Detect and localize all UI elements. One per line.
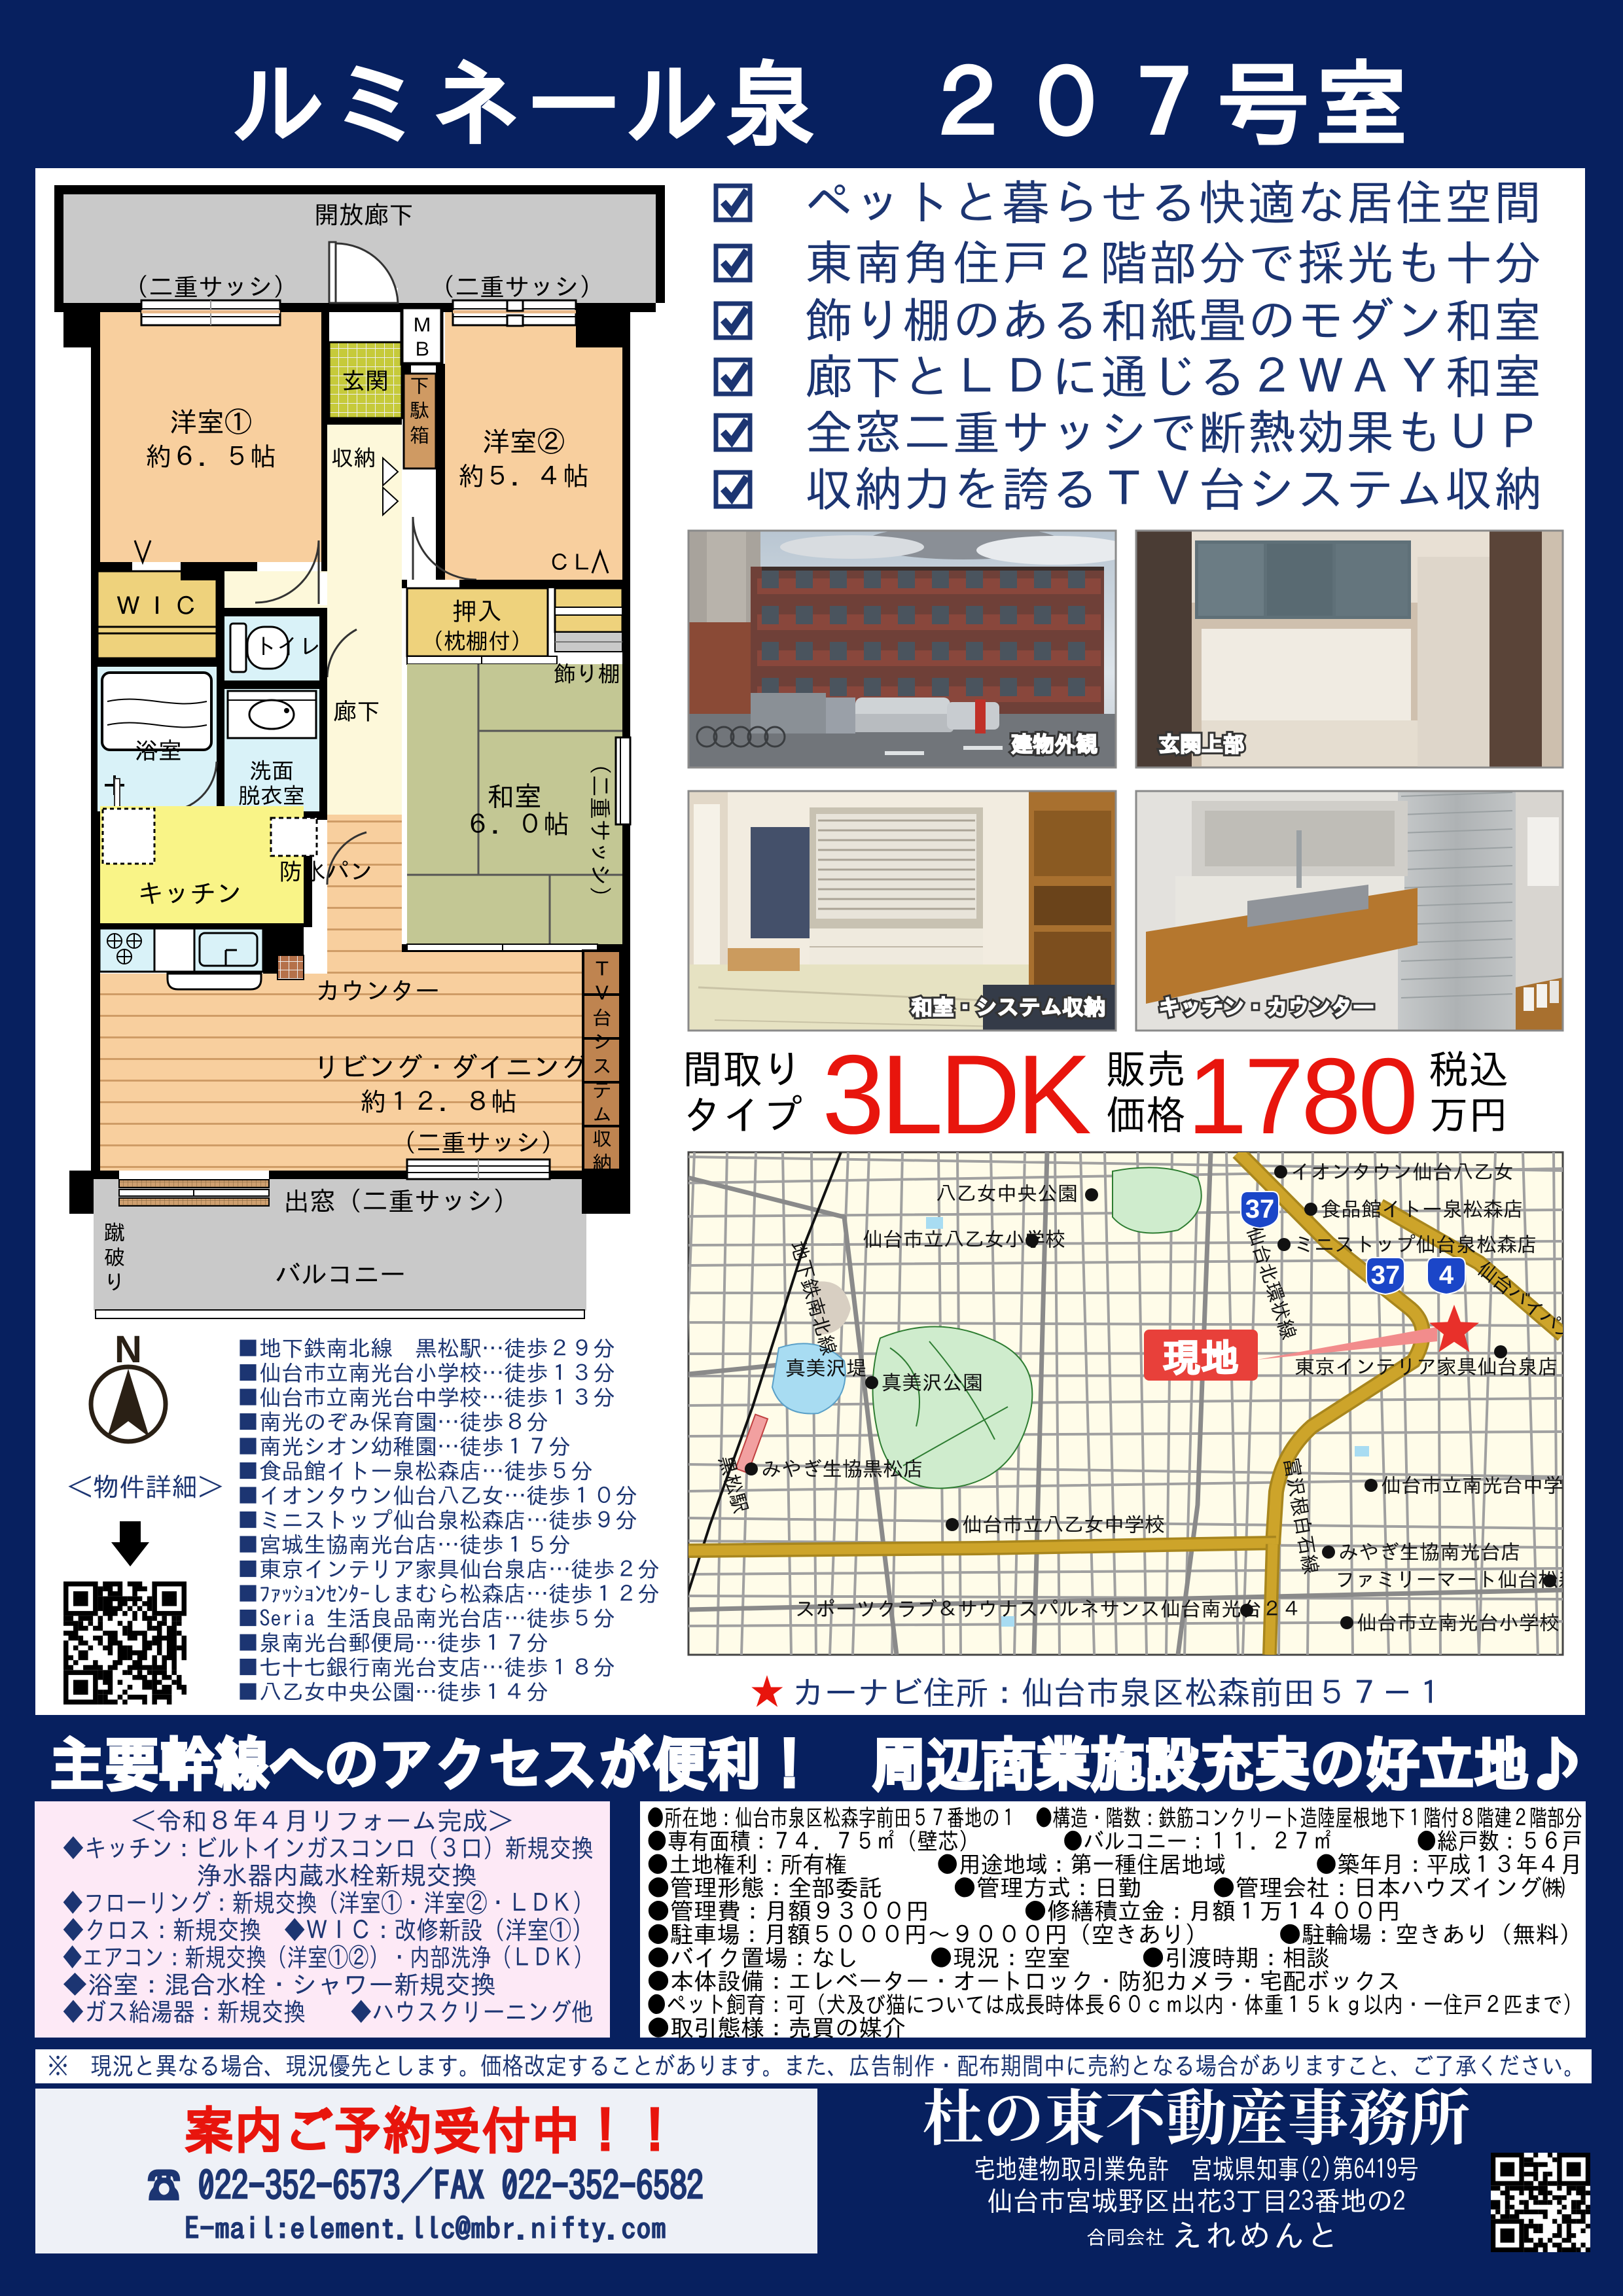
svg-text:N: N [115,1328,142,1371]
svg-text:3LDK: 3LDK [822,1032,1092,1157]
svg-text:1780: 1780 [1187,1036,1418,1156]
svg-text:4: 4 [1439,1261,1454,1290]
svg-text:37: 37 [1245,1195,1275,1224]
svg-text:37: 37 [1371,1261,1400,1290]
